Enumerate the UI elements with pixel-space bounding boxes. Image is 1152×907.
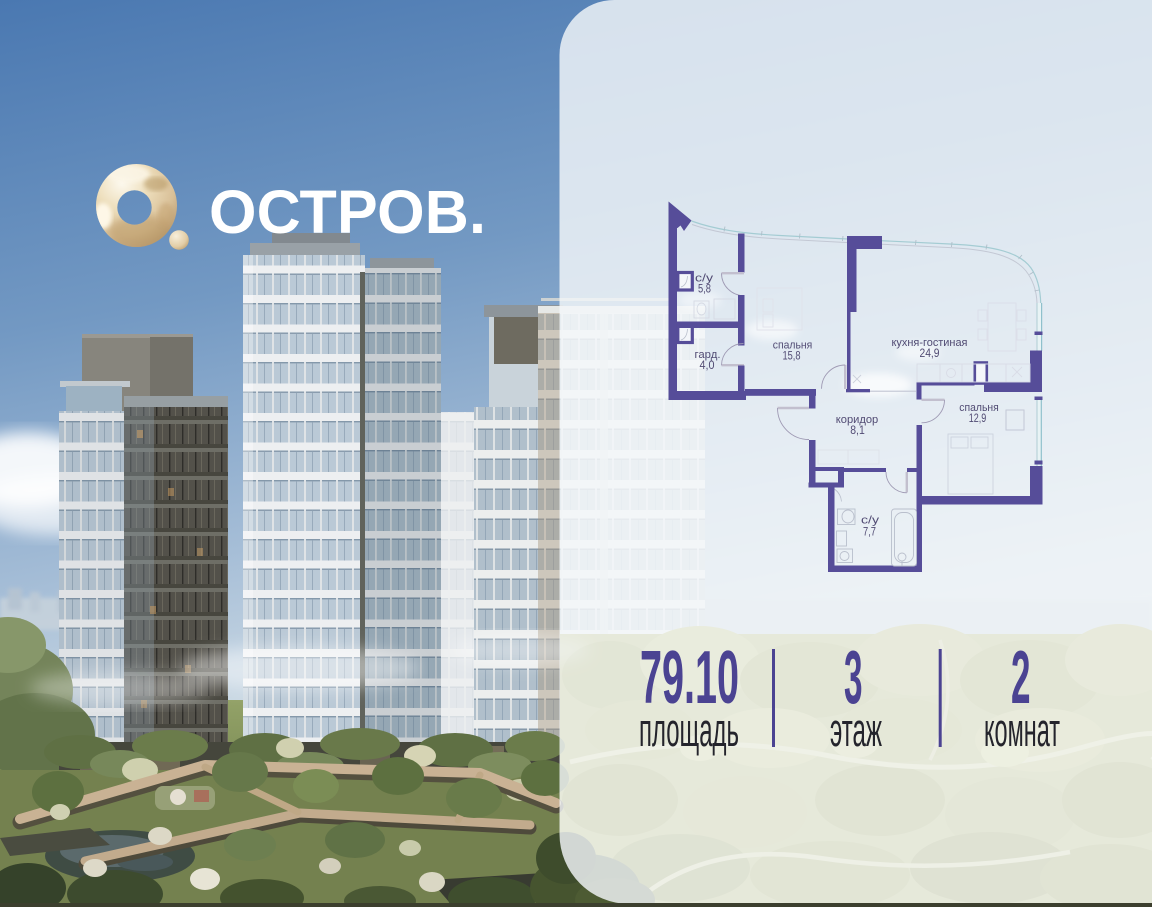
svg-text:ОСТРОВ.: ОСТРОВ. — [209, 178, 486, 246]
svg-text:4,0: 4,0 — [700, 358, 715, 372]
svg-text:8,1: 8,1 — [850, 423, 865, 437]
svg-text:12,9: 12,9 — [969, 411, 987, 425]
svg-text:15,8: 15,8 — [783, 349, 801, 363]
svg-text:7,7: 7,7 — [863, 525, 876, 539]
svg-text:этаж: этаж — [830, 703, 882, 756]
svg-text:площадь: площадь — [639, 703, 739, 756]
svg-text:5,8: 5,8 — [698, 282, 711, 296]
svg-text:комнат: комнат — [984, 703, 1060, 756]
svg-text:24,9: 24,9 — [920, 346, 940, 360]
